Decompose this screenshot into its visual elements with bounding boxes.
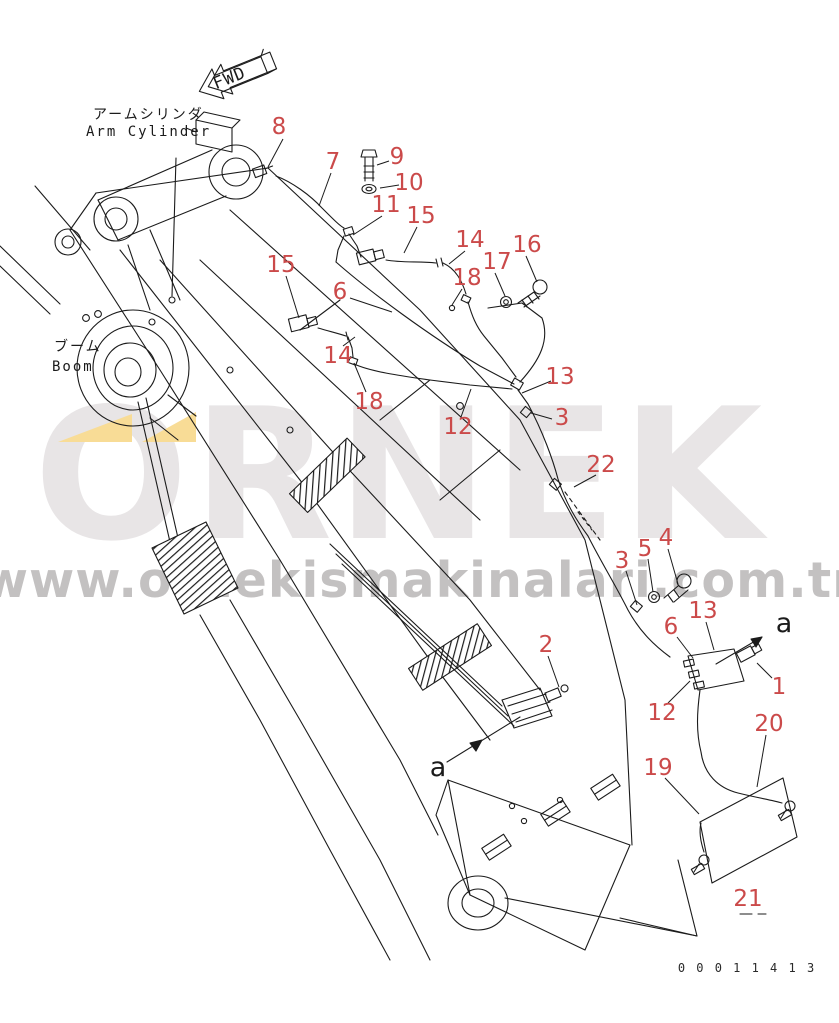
watermark: ORNEK www.ornekismakinalari.com.tr xyxy=(0,369,839,609)
callout-number-22: 22 xyxy=(586,452,615,478)
arm-cylinder-label-en: Arm Cylinder xyxy=(86,124,211,140)
fwd-label: FWD xyxy=(210,63,249,94)
diagram-canvas: ORNEK www.ornekismakinalari.com.tr xyxy=(0,0,839,1023)
callout-number-20: 20 xyxy=(754,711,783,737)
callout-number-21: 21 xyxy=(733,886,762,912)
callout-number-12: 12 xyxy=(647,700,676,726)
callout-number-9: 9 xyxy=(390,144,405,170)
callout-number-17: 17 xyxy=(482,249,511,275)
callout-leader-6 xyxy=(350,298,392,312)
callout-leader-7 xyxy=(319,173,331,206)
callout-leader-15 xyxy=(404,227,417,253)
callout-leader-13 xyxy=(706,622,714,650)
callout-leader-20 xyxy=(757,735,766,787)
callout-number-8: 8 xyxy=(272,114,287,140)
reference-letter-a: a xyxy=(430,752,447,783)
callout-number-6: 6 xyxy=(333,279,348,305)
callout-leader-15 xyxy=(286,276,299,318)
callout-number-16: 16 xyxy=(512,232,541,258)
callout-number-18: 18 xyxy=(452,265,481,291)
callout-leader-11 xyxy=(353,216,382,235)
callout-number-14: 14 xyxy=(455,227,484,253)
callout-leader-16 xyxy=(526,256,537,282)
callout-number-18: 18 xyxy=(354,389,383,415)
drawing-number: 0 0 0 1 1 4 1 3 xyxy=(678,961,816,975)
callout-number-2: 2 xyxy=(539,632,554,658)
callout-leader-2 xyxy=(548,656,559,687)
callout-leader-9 xyxy=(377,161,389,165)
callout-number-15: 15 xyxy=(266,252,295,278)
boom-foot xyxy=(436,774,697,950)
callout-leader-17 xyxy=(495,273,505,296)
callout-number-7: 7 xyxy=(326,149,341,175)
reference-letter-a: a xyxy=(776,608,793,639)
callout-leader-18 xyxy=(452,289,462,305)
callout-number-3: 3 xyxy=(555,405,570,431)
boom-label-jp: ブーム xyxy=(54,338,102,355)
callout-number-1: 1 xyxy=(772,674,787,700)
callout-leader-6 xyxy=(677,637,693,658)
parts-diagram-page: ORNEK www.ornekismakinalari.com.tr xyxy=(0,0,839,1023)
callout-number-3: 3 xyxy=(615,548,630,574)
callout-number-14: 14 xyxy=(323,343,352,369)
arm-cylinder-label-jp: アームシリンダ xyxy=(93,107,204,123)
callout-number-13: 13 xyxy=(545,364,574,390)
callout-leader-1 xyxy=(757,663,772,678)
boom-label-en: Boom xyxy=(52,359,94,375)
callout-number-4: 4 xyxy=(659,525,674,551)
callout-number-11: 11 xyxy=(371,192,400,218)
callout-number-5: 5 xyxy=(638,536,653,562)
callout-leader-8 xyxy=(268,139,283,167)
callout-leader-19 xyxy=(665,778,699,814)
callout-number-15: 15 xyxy=(406,203,435,229)
callout-number-13: 13 xyxy=(688,598,717,624)
callout-number-12: 12 xyxy=(443,414,472,440)
callout-number-19: 19 xyxy=(643,755,672,781)
callout-number-6: 6 xyxy=(664,614,679,640)
